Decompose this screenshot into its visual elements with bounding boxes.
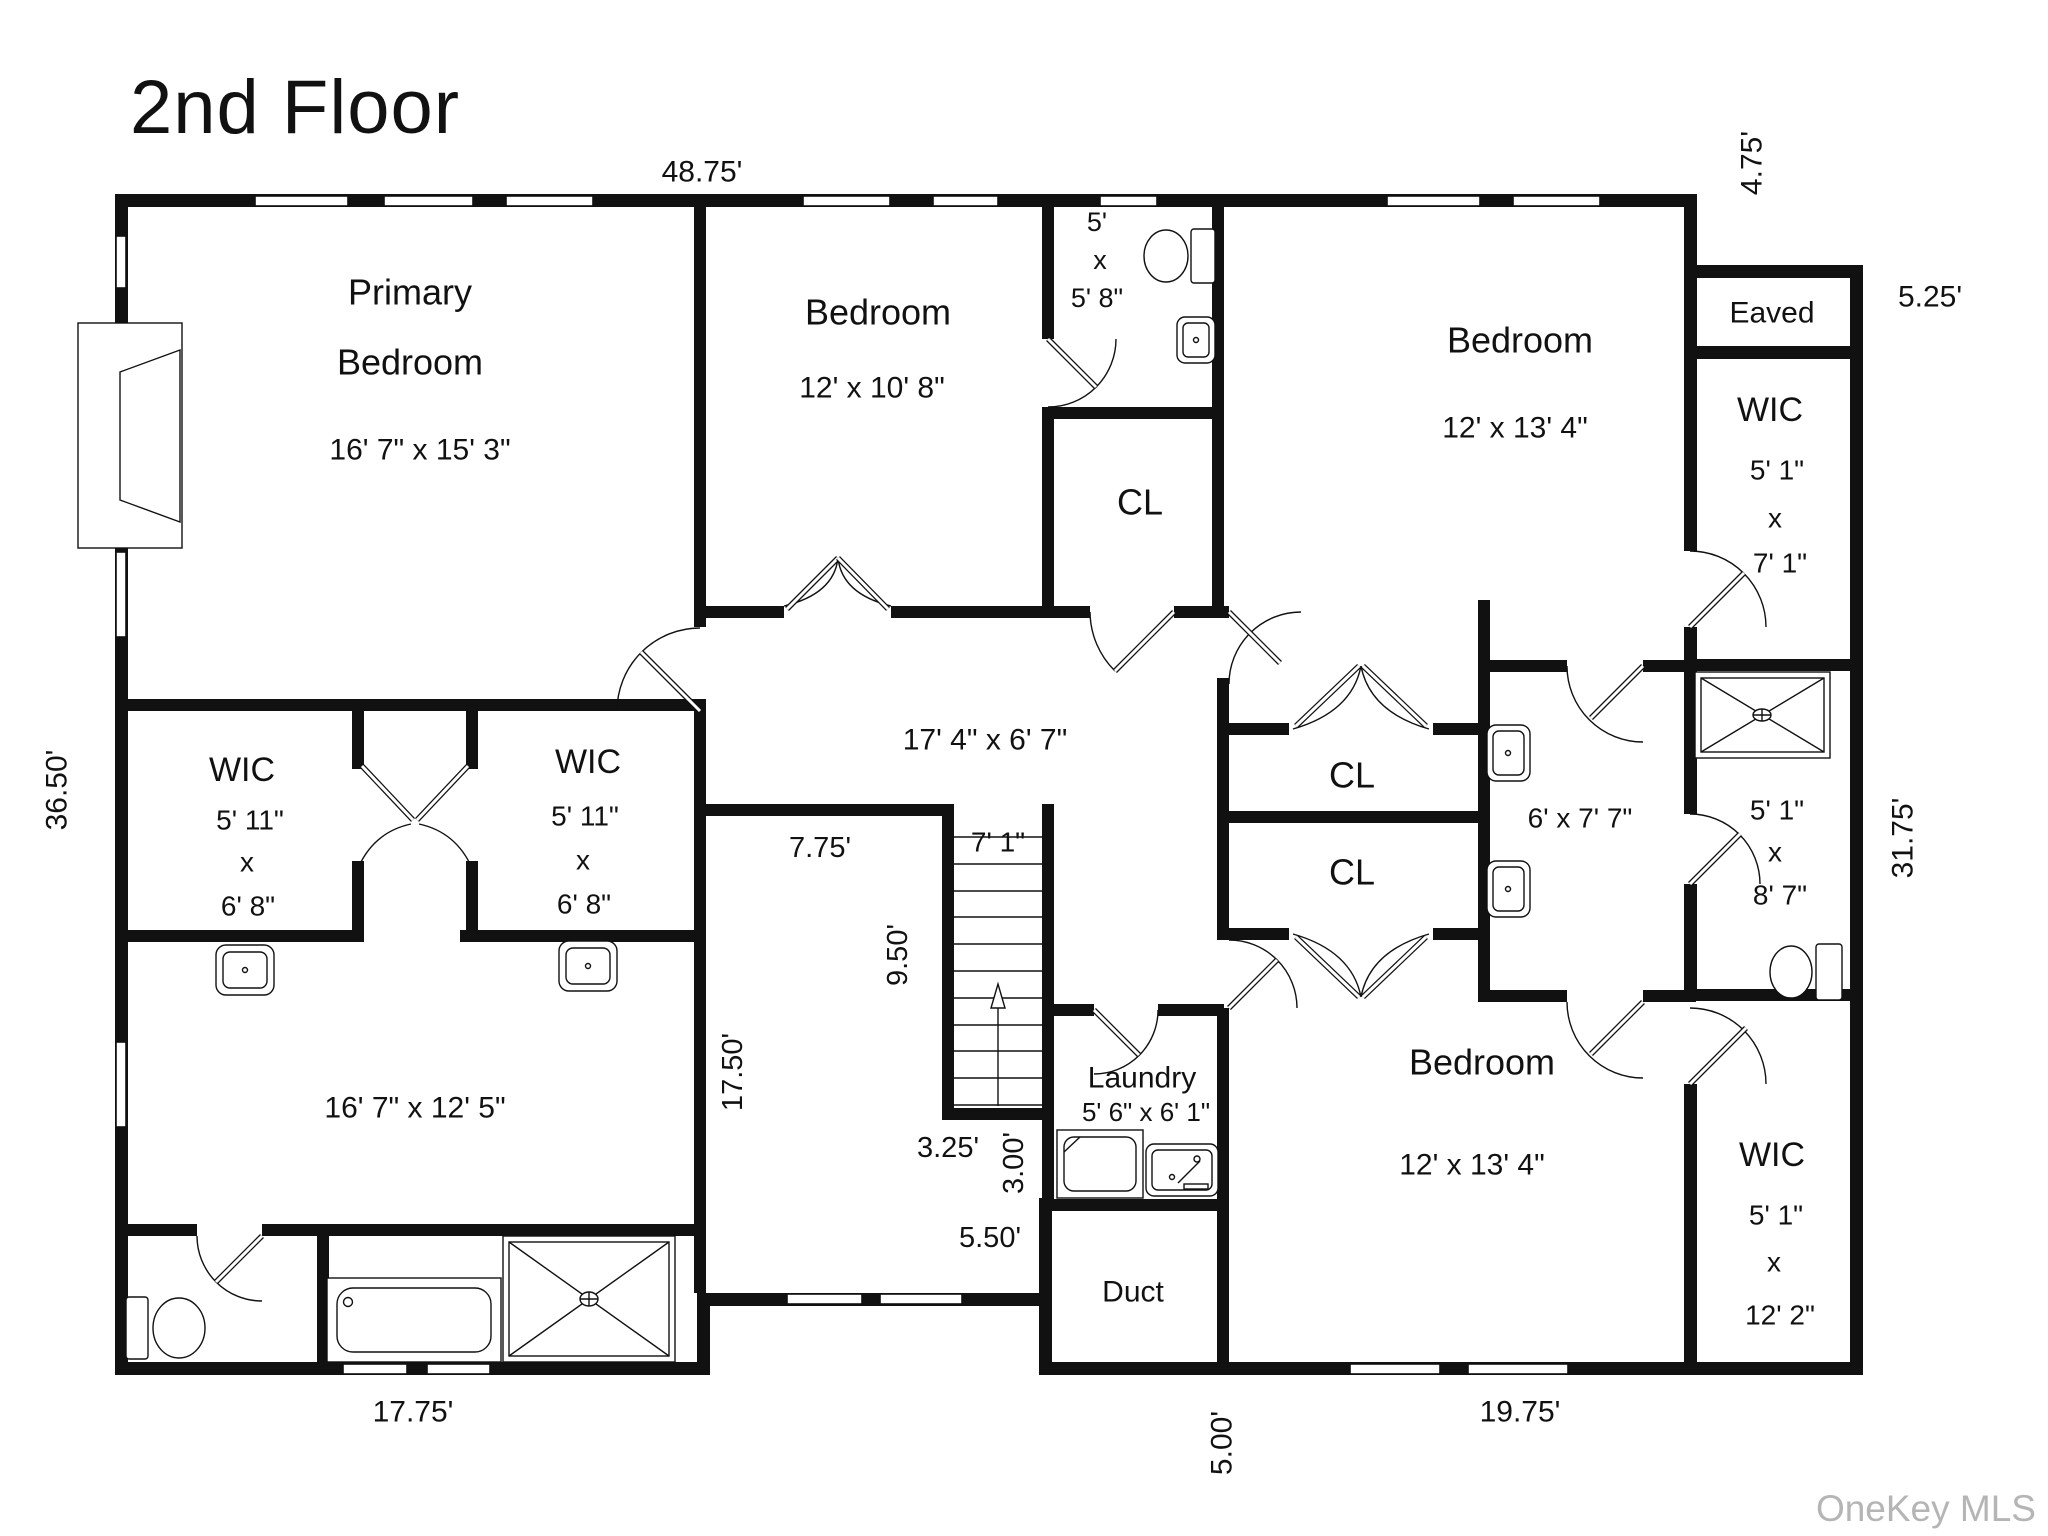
dim-recess-width: 5.50' xyxy=(959,1222,1021,1254)
room-wic-mid-right-dim-1: 5' 1" xyxy=(1750,795,1804,826)
dim-exterior-left: 36.50' xyxy=(41,750,74,831)
room-duct: Duct xyxy=(1102,1276,1164,1309)
dim-landing-width: 7.75' xyxy=(789,832,851,864)
room-wic-left-dim-1: 5' 11" xyxy=(216,805,284,836)
room-bedroom-top-middle-name: Bedroom xyxy=(805,292,951,333)
sink-icon xyxy=(1487,861,1530,917)
shower-icon xyxy=(1695,672,1830,758)
room-wic-left-dim-2: x xyxy=(240,847,254,878)
room-wic-bottom-right-name: WIC xyxy=(1739,1136,1805,1174)
stair-direction-arrow xyxy=(991,984,1005,1008)
room-wic-mid-name: WIC xyxy=(555,743,621,781)
bay-window xyxy=(78,323,182,548)
dim-exterior-top: 48.75' xyxy=(662,156,743,189)
hallway-dims: 17' 4" x 6' 7" xyxy=(903,724,1068,757)
dim-exterior-duct: 5.00' xyxy=(1206,1411,1239,1475)
staircase xyxy=(954,837,1042,1106)
floorplan-drawing: PrimaryBedroom16' 7" x 15' 3"Bedroom12' … xyxy=(0,0,2048,1536)
room-laundry-name: Laundry xyxy=(1088,1062,1196,1095)
washer-icon xyxy=(1057,1130,1143,1198)
dim-stair-side: 3.00' xyxy=(998,1132,1030,1194)
room-primary-bedroom-dims: 16' 7" x 15' 3" xyxy=(329,434,510,467)
fixtures xyxy=(126,229,1842,1362)
floorplan-page: 2nd Floor xyxy=(0,0,2048,1536)
dim-exterior-bottom-right: 19.75' xyxy=(1480,1396,1561,1429)
room-wic-mid-dim-2: x xyxy=(576,845,590,876)
room-bath-top-dim-1: 5' xyxy=(1087,207,1107,237)
laundry-sink-icon xyxy=(1146,1144,1218,1196)
stair-dim-width: 7' 1" xyxy=(971,827,1025,858)
dim-stair-run: 9.50' xyxy=(882,924,914,986)
room-wic-mid-right-dim-2: x xyxy=(1768,837,1782,868)
room-bath-top-dim-3: 5' 8" xyxy=(1071,283,1123,313)
dim-left-section-depth: 17.50' xyxy=(717,1033,749,1111)
dim-exterior-right: 31.75' xyxy=(1887,798,1920,879)
room-wic-mid-dim-3: 6' 8" xyxy=(557,889,611,920)
dim-exterior-notch: 4.75' xyxy=(1736,131,1769,195)
room-bottom-left-dims: 16' 7" x 12' 5" xyxy=(324,1092,505,1125)
room-bedroom-top-right-name: Bedroom xyxy=(1447,320,1593,361)
room-bedroom-top-right-dims: 12' x 13' 4" xyxy=(1442,412,1588,445)
bathtub-icon xyxy=(327,1278,501,1362)
dim-exterior-bottom-left: 17.75' xyxy=(373,1396,454,1429)
room-closet-2: CL xyxy=(1329,852,1375,893)
room-wic-mid-right-dim-3: 8' 7" xyxy=(1753,880,1807,911)
room-wic-bottom-right-dim-1: 5' 1" xyxy=(1749,1200,1803,1231)
sink-icon xyxy=(216,945,274,995)
room-wic-top-right-name: WIC xyxy=(1737,391,1803,429)
room-wic-top-right-dim-1: 5' 1" xyxy=(1750,455,1804,486)
toilet-icon xyxy=(126,1297,205,1359)
room-primary-bedroom-name-line1: Primary xyxy=(348,272,472,313)
room-bedroom-top-middle-dims: 12' x 10' 8" xyxy=(799,372,945,405)
room-bedroom-bottom-right-dims: 12' x 13' 4" xyxy=(1399,1149,1545,1182)
room-closet-1: CL xyxy=(1329,755,1375,796)
sink-icon xyxy=(1487,725,1530,781)
room-bath-top-dim-2: x xyxy=(1093,245,1107,275)
shower-icon xyxy=(503,1236,675,1362)
sink-icon xyxy=(1177,317,1215,363)
room-wic-top-right-dim-3: 7' 1" xyxy=(1753,548,1807,579)
room-wic-left-name: WIC xyxy=(209,751,275,789)
room-primary-bedroom-name-line2: Bedroom xyxy=(337,342,483,383)
room-bedroom-bottom-right-name: Bedroom xyxy=(1409,1042,1555,1083)
room-wic-left-dim-3: 6' 8" xyxy=(221,891,275,922)
room-eaved: Eaved xyxy=(1729,297,1814,330)
room-wic-top-right-dim-2: x xyxy=(1768,503,1782,534)
room-bath-right-dims: 6' x 7' 7" xyxy=(1528,803,1633,834)
room-wic-mid-dim-1: 5' 11" xyxy=(551,801,619,832)
room-laundry-dims: 5' 6" x 6' 1" xyxy=(1082,1097,1210,1127)
room-wic-bottom-right-dim-2: x xyxy=(1767,1247,1781,1278)
watermark: OneKey MLS xyxy=(1816,1488,2036,1530)
sink-icon xyxy=(559,941,617,991)
room-closet-top: CL xyxy=(1117,482,1163,523)
room-wic-bottom-right-dim-3: 12' 2" xyxy=(1745,1300,1815,1331)
dim-exterior-eaved: 5.25' xyxy=(1898,281,1962,314)
dim-stair-landing-bottom: 3.25' xyxy=(917,1132,979,1164)
toilet-icon xyxy=(1144,229,1215,283)
